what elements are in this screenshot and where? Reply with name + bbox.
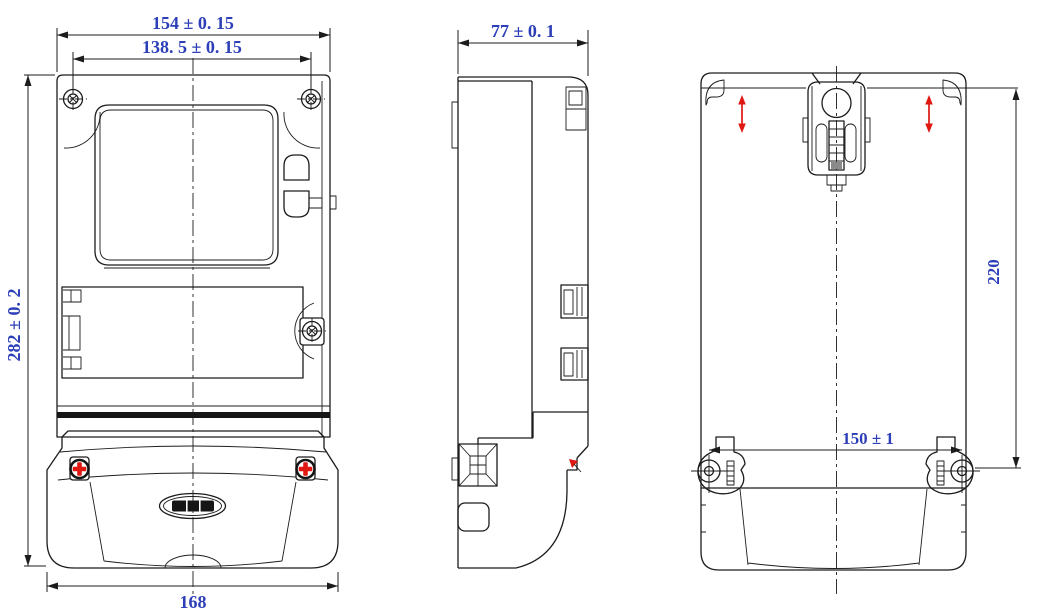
- dim-front-overall-width: 154 ± 0. 15: [152, 13, 234, 33]
- dim-back-feet-span: 150 ± 1: [842, 429, 894, 448]
- dim-back-mount-height: 220: [984, 259, 1003, 285]
- seal-screw-left-icon: [71, 460, 89, 478]
- dim-168-extensions: [47, 572, 338, 592]
- terminal-seal-boss: [452, 444, 497, 486]
- side-hanger-block: [566, 87, 586, 130]
- dim-138-extensions: [73, 52, 311, 93]
- meter-outline-drawing: 154 ± 0. 15 138. 5 ± 0. 15 282 ± 0. 2 16…: [0, 0, 1044, 616]
- front-view: [47, 58, 338, 594]
- mounting-screw-left-icon: [691, 455, 727, 493]
- corner-hook-left: [706, 80, 724, 105]
- lcd-window-inner: [100, 110, 273, 260]
- mounting-foot-right: [926, 437, 980, 494]
- back-view: [691, 66, 1018, 594]
- brand-logo-icon: [160, 494, 226, 519]
- corner-hook-right: [943, 80, 961, 105]
- din-clip-lower: [561, 348, 588, 380]
- adjust-arrow-right-icon: [925, 95, 933, 133]
- front-body-outline: [57, 75, 330, 437]
- push-button-upper: [284, 155, 309, 180]
- side-step-lines: [478, 412, 588, 444]
- nameplate-left-notches: [63, 290, 81, 369]
- button-seal-tab: [309, 196, 336, 209]
- seal-screw-right-icon: [297, 460, 315, 478]
- terminal-cover-back: [701, 488, 966, 569]
- adjust-arrow-left-icon: [738, 95, 746, 133]
- lcd-window: [95, 105, 278, 265]
- mounting-screw-right-icon: [944, 455, 980, 493]
- dim-front-screw-span: 138. 5 ± 0. 15: [142, 37, 242, 57]
- side-body-outline: [458, 77, 588, 568]
- corner-arc-right: [284, 112, 320, 148]
- push-button-lower: [284, 191, 309, 217]
- dimensions: 154 ± 0. 15 138. 5 ± 0. 15 282 ± 0. 2 16…: [4, 13, 1021, 612]
- nameplate-panel: [62, 287, 303, 378]
- dim-front-overall-height: 282 ± 0. 2: [4, 289, 24, 362]
- din-clip-upper: [561, 285, 588, 318]
- body-gasket-band: [57, 412, 330, 418]
- side-cover-profile: [458, 446, 588, 568]
- mounting-foot-left: [691, 437, 745, 494]
- dim-side-depth: 77 ± 0. 1: [491, 21, 555, 41]
- side-foot-tab: [458, 503, 489, 531]
- technical-drawing-page: 154 ± 0. 15 138. 5 ± 0. 15 282 ± 0. 2 16…: [0, 0, 1044, 616]
- dim-282-extensions: [24, 75, 55, 566]
- terminal-cover-front: [47, 431, 338, 568]
- side-hinge-tab: [452, 102, 458, 148]
- dim-front-cover-width: 168: [180, 592, 207, 612]
- side-view: [452, 77, 588, 568]
